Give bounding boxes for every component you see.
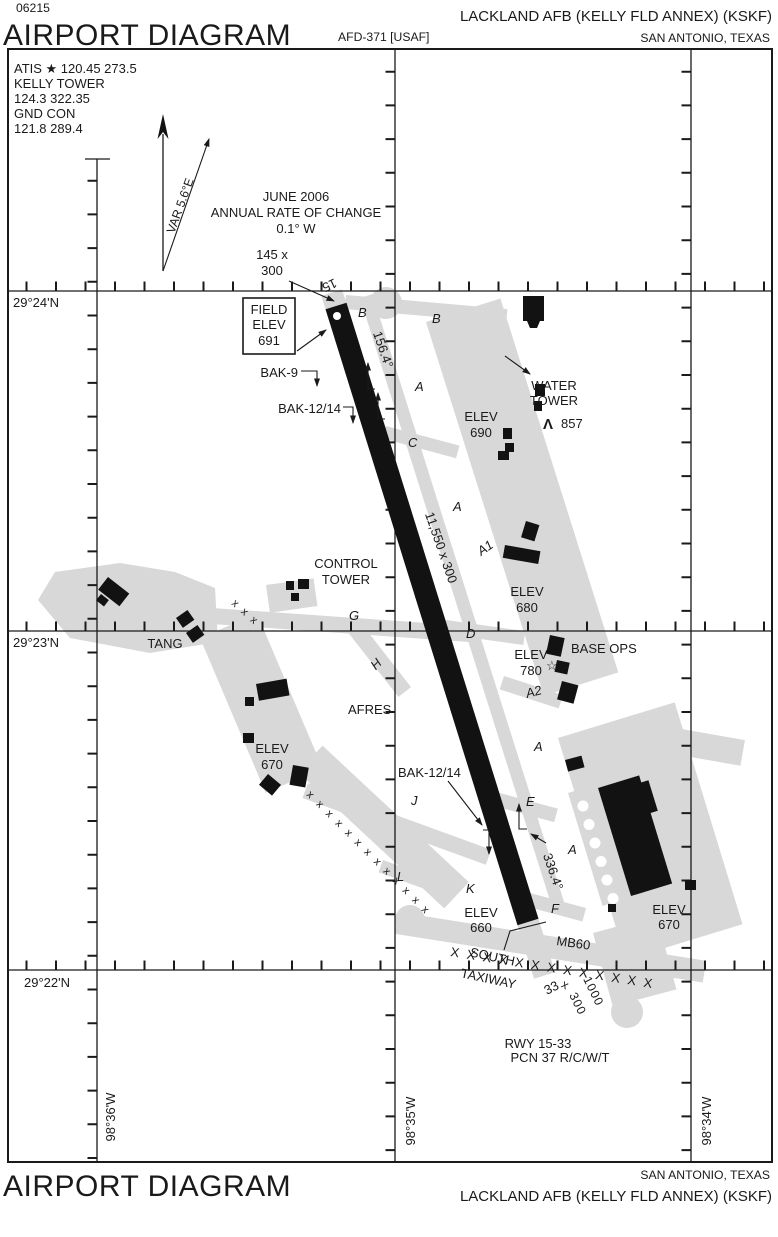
taxiway-d-connector bbox=[444, 620, 525, 645]
elev-690-value: 690 bbox=[470, 425, 492, 440]
obstruction-elevation: 857 bbox=[561, 416, 583, 431]
building bbox=[523, 296, 544, 321]
footer-title: AIRPORT DIAGRAM bbox=[3, 1170, 291, 1203]
bak1214-south-label: BAK-12/14 bbox=[398, 765, 461, 780]
elev-780-word: ELEV bbox=[514, 647, 548, 662]
tang-label: TANG bbox=[147, 636, 182, 651]
taxiway-label-g: G bbox=[349, 608, 359, 623]
building bbox=[685, 880, 696, 890]
airport-diagram-page: 06215 AIRPORT DIAGRAM AFD-371 [USAF] LAC… bbox=[0, 0, 778, 1232]
building bbox=[608, 904, 616, 912]
runway-number-33: 33 bbox=[541, 978, 561, 998]
elev-670-east-word: ELEV bbox=[652, 902, 686, 917]
taxiway-label-c: C bbox=[408, 435, 418, 450]
ground-name: GND CON bbox=[14, 106, 75, 121]
south-taxiway-label-2: TAXIWAY bbox=[460, 965, 518, 991]
elev-690-word: ELEV bbox=[464, 409, 498, 424]
elev-680-value: 680 bbox=[516, 600, 538, 615]
lon-label-98-34: 98°34'W bbox=[699, 1096, 714, 1146]
lon-label-98-35: 98°35'W bbox=[403, 1096, 418, 1146]
taxiway-label-d: D bbox=[466, 626, 475, 641]
taxiway-label-b-east: B bbox=[432, 311, 441, 326]
airport-name: LACKLAND AFB (KELLY FLD ANNEX) (KSKF) bbox=[460, 8, 772, 25]
lat-label-29-22: 29°22'N bbox=[24, 975, 70, 990]
field-elev-leader bbox=[297, 330, 326, 351]
taxiway-label-a-south: A bbox=[567, 842, 577, 857]
variation-date: JUNE 2006 bbox=[263, 189, 329, 204]
elev-670-east-value: 670 bbox=[658, 917, 680, 932]
control-tower-label-1: CONTROL bbox=[314, 556, 378, 571]
water-tower-label-1: WATER bbox=[531, 378, 577, 393]
field-elev-value: 691 bbox=[258, 333, 280, 348]
taxiway-label-f: F bbox=[551, 901, 560, 916]
rate-of-change-value: 0.1° W bbox=[276, 221, 316, 236]
water-tower-label-2: TOWER bbox=[530, 393, 578, 408]
elev-680-word: ELEV bbox=[510, 584, 544, 599]
control-tower-building bbox=[298, 579, 309, 589]
overrun-north-size-2: 300 bbox=[261, 263, 283, 278]
control-tower-building bbox=[286, 581, 294, 590]
field-elev-line1: FIELD bbox=[251, 302, 288, 317]
variation-label: VAR 5.6°E bbox=[164, 176, 197, 235]
tower-name: KELLY TOWER bbox=[14, 76, 105, 91]
tower-frequency: 124.3 322.35 bbox=[14, 91, 90, 106]
elev-660-word: ELEV bbox=[464, 905, 498, 920]
lat-label-29-24: 29°24'N bbox=[13, 295, 59, 310]
taxiway-label-a-mid: A bbox=[452, 499, 462, 514]
building bbox=[505, 443, 514, 452]
bak9-arrow bbox=[301, 371, 317, 386]
afres-label: AFRES bbox=[348, 702, 392, 717]
page-title: AIRPORT DIAGRAM bbox=[3, 19, 291, 52]
taxiway-label-a1: A1 bbox=[474, 537, 496, 559]
lat-label-29-23: 29°23'N bbox=[13, 635, 59, 650]
elev-670-west-word: ELEV bbox=[255, 741, 289, 756]
airport-city: SAN ANTONIO, TEXAS bbox=[640, 31, 770, 45]
obstruction-icon: Λ bbox=[543, 416, 553, 433]
bak1214-north-label: BAK-12/14 bbox=[278, 401, 341, 416]
runway-heading-se: 156.4° bbox=[370, 329, 396, 370]
overrun-south-x: x bbox=[559, 977, 571, 992]
elev-670-west-value: 670 bbox=[261, 757, 283, 772]
runway-info-line1: RWY 15-33 bbox=[505, 1036, 572, 1051]
footer-city: SAN ANTONIO, TEXAS bbox=[640, 1168, 770, 1182]
elev-660-value: 660 bbox=[470, 920, 492, 935]
building bbox=[498, 451, 509, 460]
taxiway-label-b-west: B bbox=[358, 305, 367, 320]
lon-label-98-36: 98°36'W bbox=[103, 1092, 118, 1142]
building bbox=[503, 428, 512, 439]
control-tower-label-2: TOWER bbox=[322, 572, 370, 587]
overrun-north-size-1: 145 x bbox=[256, 247, 288, 262]
building bbox=[290, 765, 309, 787]
elev-780-value: 780 bbox=[520, 663, 542, 678]
building bbox=[245, 697, 254, 706]
bak9-label: BAK-9 bbox=[260, 365, 298, 380]
base-ops-label: BASE OPS bbox=[571, 641, 637, 656]
overrun-south-width: 300 bbox=[566, 990, 589, 1017]
airport-diagram-chart: 06215 AIRPORT DIAGRAM AFD-371 [USAF] LAC… bbox=[0, 0, 778, 1232]
runway-threshold-dot bbox=[333, 312, 341, 320]
ground-frequency: 121.8 289.4 bbox=[14, 121, 83, 136]
taxiway-label-e: E bbox=[526, 794, 535, 809]
taxiway-label-j: J bbox=[410, 793, 418, 808]
runway-info-line2: PCN 37 R/C/W/T bbox=[511, 1050, 610, 1065]
taxiway-label-a-north: A bbox=[414, 379, 424, 394]
field-elev-line2: ELEV bbox=[252, 317, 286, 332]
base-ops-star-icon: ☆ bbox=[546, 658, 558, 673]
pavement-network bbox=[38, 287, 745, 1028]
building bbox=[527, 321, 540, 328]
afd-reference: AFD-371 [USAF] bbox=[338, 30, 429, 44]
rate-of-change-label: ANNUAL RATE OF CHANGE bbox=[211, 205, 382, 220]
taxiway-label-a-lower: A bbox=[533, 739, 543, 754]
bak1214-north-arrow bbox=[343, 407, 353, 423]
building bbox=[243, 733, 254, 743]
control-tower-building bbox=[291, 593, 299, 601]
taxiway-label-k: K bbox=[466, 881, 476, 896]
chart-number: 06215 bbox=[16, 1, 50, 15]
atis-frequency: ATIS ★ 120.45 273.5 bbox=[14, 61, 137, 76]
south-apron-loop bbox=[611, 996, 643, 1028]
footer-airport-name: LACKLAND AFB (KELLY FLD ANNEX) (KSKF) bbox=[460, 1188, 772, 1205]
